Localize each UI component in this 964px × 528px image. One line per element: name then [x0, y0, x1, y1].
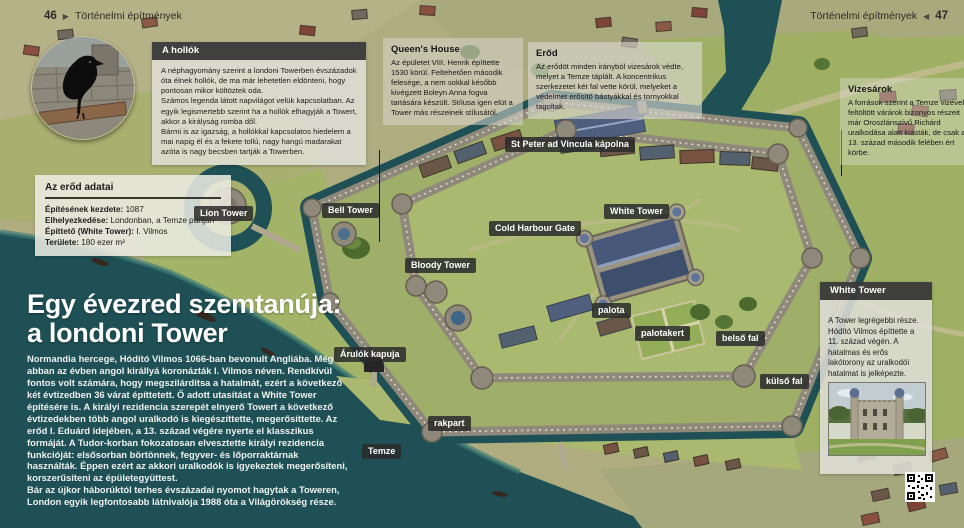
map-label-st-peter-chapel: St Peter ad Vincula kápolna [505, 137, 635, 152]
arrow-right-icon: ▶ [63, 12, 69, 21]
map-label-wharf: rakpart [428, 416, 471, 431]
queens-house-callout: Queen's House Az épületet VIII. Henrik é… [383, 38, 523, 125]
fortress-text: Az erődöt minden irányból vizesárok védt… [536, 62, 694, 112]
page-number-right: 47 [935, 10, 948, 22]
page-title-line2: a londoni Tower [27, 319, 341, 348]
queens-house-leader-line [379, 150, 380, 242]
page-title: Egy évezred szemtanúja: a londoni Tower [27, 290, 341, 347]
white-tower-photo [828, 382, 926, 456]
section-title-right: Történelmi építmények [810, 10, 917, 22]
intro-paragraph: Normandia hercege, Hódító Vilmos 1066-ba… [27, 353, 351, 508]
white-tower-text: A Tower legrégebbi része. Hódító Vilmos … [828, 316, 919, 377]
magazine-spread: 46 ▶ Történelmi építmények Történelmi ép… [0, 0, 964, 528]
white-tower-callout: White Tower A Tower legrégebbi része. Hó… [820, 282, 932, 474]
section-title-left: Történelmi építmények [75, 10, 182, 22]
map-label-lion-tower: Lion Tower [194, 206, 253, 221]
ravens-callout: A hollók A néphagyomány szerint a london… [152, 42, 366, 165]
map-label-outer-wall: külső fal [760, 374, 809, 389]
moat-text: A források szerint a Temze vizével feltö… [848, 98, 964, 158]
map-label-palace-garden: palotakert [635, 326, 690, 341]
fort-data-row: Területe: 180 ezer m² [45, 237, 221, 248]
divider [45, 197, 221, 199]
page-number-left: 46 [44, 10, 57, 22]
map-label-palace: palota [592, 303, 631, 318]
fort-data-row: Építtető (White Tower): I. Vilmos [45, 226, 221, 237]
fort-data-value: 180 ezer m² [81, 238, 125, 247]
fortress-title: Erőd [536, 48, 694, 59]
map-label-inner-wall: belső fal [716, 331, 765, 346]
qr-code [905, 472, 935, 502]
white-tower-body: A Tower legrégebbi része. Hódító Vilmos … [820, 300, 932, 474]
fort-data-label: Elhelyezkedése: [45, 216, 108, 225]
fort-data-label: Építésének kezdete: [45, 205, 123, 214]
white-tower-title: White Tower [820, 282, 932, 300]
arrow-left-icon: ◀ [923, 12, 929, 21]
raven-photo [31, 36, 135, 140]
moat-title: Vizesárok [848, 84, 964, 95]
map-label-bloody-tower: Bloody Tower [405, 258, 476, 273]
fort-data-title: Az erőd adatai [45, 182, 221, 193]
page-header-left: 46 ▶ Történelmi építmények [44, 10, 182, 22]
ravens-text: A néphagyomány szerint a londoni Towerbe… [152, 60, 366, 165]
fortress-callout: Erőd Az erődöt minden irányból vizesárok… [528, 42, 702, 119]
fort-data-label: Építtető (White Tower): [45, 227, 134, 236]
queens-house-text: Az épületet VIII. Henrik építtette 1530 … [391, 58, 515, 118]
ravens-title: A hollók [152, 42, 366, 60]
map-label-traitors-gate: Árulók kapuja [334, 347, 406, 362]
map-label-thames: Temze [362, 444, 401, 459]
map-label-cold-harbour-gate: Cold Harbour Gate [489, 221, 581, 236]
queens-house-title: Queen's House [391, 44, 515, 55]
page-header-right: Történelmi építmények ◀ 47 [810, 10, 948, 22]
fort-data-label: Területe: [45, 238, 79, 247]
fort-data-value: I. Vilmos [136, 227, 167, 236]
raven-illustration [32, 37, 134, 139]
page-title-line1: Egy évezred szemtanúja: [27, 290, 341, 319]
map-label-white-tower: White Tower [604, 204, 669, 219]
fort-data-value: 1087 [126, 205, 144, 214]
moat-callout: Vizesárok A források szerint a Temze viz… [840, 78, 964, 165]
map-label-bell-tower: Bell Tower [322, 203, 379, 218]
